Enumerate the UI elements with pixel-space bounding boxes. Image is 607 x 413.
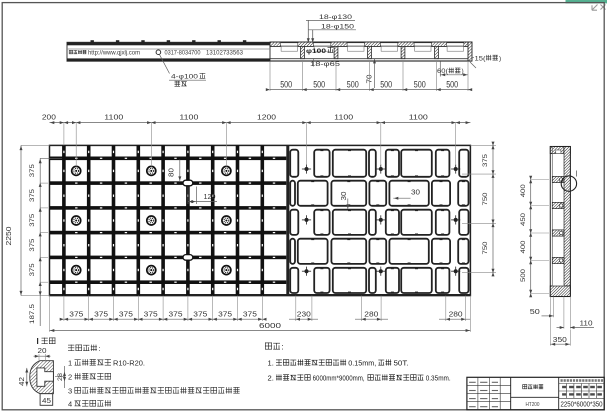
svg-text:110: 110 (580, 318, 593, 327)
svg-text:400: 400 (520, 184, 527, 197)
svg-text:2250: 2250 (4, 227, 13, 246)
svg-text:45: 45 (42, 398, 51, 405)
svg-text:500: 500 (380, 80, 392, 90)
svg-text:13102733563: 13102733563 (206, 50, 244, 57)
svg-text:φ100: φ100 (306, 48, 326, 55)
svg-text:500: 500 (446, 80, 458, 90)
svg-text:42: 42 (19, 377, 26, 386)
svg-text:70: 70 (367, 74, 374, 83)
svg-text:500: 500 (520, 269, 527, 282)
svg-text:375: 375 (169, 309, 183, 318)
svg-text:R10-R20.: R10-R20. (113, 359, 145, 368)
svg-text:280: 280 (364, 309, 378, 318)
svg-text:375: 375 (243, 309, 257, 318)
svg-text:28: 28 (58, 372, 64, 381)
svg-text:500: 500 (280, 80, 292, 90)
svg-text:375: 375 (218, 309, 232, 318)
svg-text:2: 2 (68, 373, 72, 382)
svg-text:500: 500 (313, 80, 325, 90)
svg-text:1100: 1100 (409, 113, 428, 122)
svg-text:30: 30 (411, 189, 420, 196)
svg-text:280: 280 (449, 309, 463, 318)
svg-text:4-φ100: 4-φ100 (171, 74, 198, 81)
svg-text:50: 50 (530, 307, 540, 316)
svg-text:375: 375 (144, 309, 158, 318)
svg-text:0.15mm,: 0.15mm, (348, 359, 376, 368)
svg-text:375: 375 (29, 214, 36, 227)
svg-text:1.: 1. (268, 359, 274, 368)
svg-text:400: 400 (520, 240, 527, 253)
svg-text:375: 375 (482, 154, 489, 167)
svg-text:): ) (499, 55, 501, 62)
svg-text:1: 1 (68, 359, 72, 368)
svg-text:0.35mm.: 0.35mm. (426, 374, 451, 383)
svg-text:375: 375 (69, 309, 83, 318)
svg-text:http://www.qjxlj.com: http://www.qjxlj.com (88, 50, 140, 57)
svg-text:1100: 1100 (334, 113, 353, 122)
svg-text:375: 375 (29, 263, 36, 276)
svg-text:0317-8034700: 0317-8034700 (165, 50, 201, 57)
svg-text:30: 30 (341, 191, 348, 200)
svg-text:375: 375 (29, 164, 36, 177)
svg-text:500: 500 (414, 80, 426, 90)
svg-text:750: 750 (482, 192, 489, 205)
svg-text:120: 120 (204, 194, 216, 201)
svg-text:80: 80 (169, 168, 176, 177)
svg-text:187.5: 187.5 (29, 304, 36, 324)
svg-text:I: I (37, 337, 39, 346)
svg-text::: : (282, 343, 284, 352)
svg-text:1100: 1100 (179, 113, 198, 122)
svg-text:450: 450 (520, 213, 527, 226)
svg-text:60(: 60( (437, 68, 449, 75)
svg-text:2.: 2. (268, 374, 274, 383)
svg-text:2250*6000*350: 2250*6000*350 (561, 400, 603, 409)
svg-text:4: 4 (68, 400, 72, 409)
svg-text:6000: 6000 (259, 321, 281, 330)
svg-text:750: 750 (482, 241, 489, 254)
svg-text:350: 350 (553, 335, 567, 344)
svg-text:1100: 1100 (104, 113, 123, 122)
svg-text:3: 3 (68, 387, 72, 396)
svg-text:50T.: 50T. (394, 359, 409, 368)
svg-text:6000mm*9000mm,: 6000mm*9000mm, (313, 374, 365, 383)
svg-text:200: 200 (42, 113, 56, 122)
svg-text:230: 230 (297, 309, 311, 318)
svg-text:375: 375 (193, 309, 207, 318)
svg-text:1200: 1200 (257, 113, 276, 122)
svg-text:375: 375 (119, 309, 133, 318)
svg-text:HT200: HT200 (526, 402, 540, 408)
svg-text:375: 375 (29, 189, 36, 202)
svg-text:): ) (462, 68, 464, 75)
svg-text:500: 500 (347, 80, 359, 90)
svg-text:375: 375 (94, 309, 108, 318)
svg-text::: : (99, 344, 101, 353)
svg-text:375: 375 (29, 238, 36, 251)
svg-text:15(: 15( (475, 55, 487, 62)
